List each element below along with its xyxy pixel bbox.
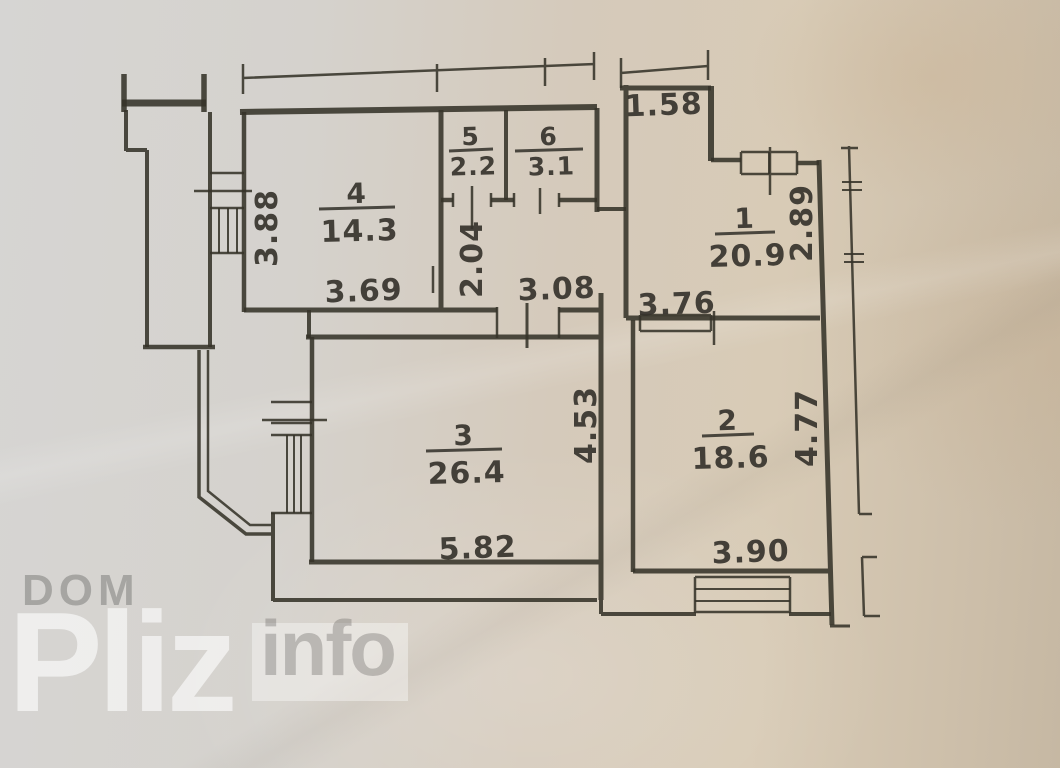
dimension-line-marks xyxy=(243,50,880,616)
room-4-area: 14.3 xyxy=(320,213,399,250)
room-5-area: 2.2 xyxy=(449,151,497,181)
dimension-lines xyxy=(243,50,880,616)
dimension-3.69: 3.69 xyxy=(324,273,403,311)
room-6-area: 3.1 xyxy=(527,151,575,181)
bay-window-outline-outer xyxy=(199,350,271,534)
floor-plan-drawing: 120.9218.6326.4414.352.263.11.583.883.69… xyxy=(0,0,1060,768)
dimension-3.76: 3.76 xyxy=(637,286,716,324)
dimension-3.88: 3.88 xyxy=(250,189,285,267)
dimension-1.58: 1.58 xyxy=(624,87,703,125)
dimension-2.89: 2.89 xyxy=(785,184,820,262)
room-2-area: 18.6 xyxy=(691,440,770,477)
dimension-3.08: 3.08 xyxy=(517,271,596,309)
room-2-number: 2 xyxy=(717,404,738,438)
scanned-floor-plan-photo: DOM Pliz info 120.9218.6326.4414.352. xyxy=(0,0,1060,768)
room-3-area: 26.4 xyxy=(427,455,506,492)
dimension-5.82: 5.82 xyxy=(438,530,517,568)
bay-window-outline-inner xyxy=(208,350,271,525)
room-2-underline xyxy=(702,434,754,436)
room-4-underline xyxy=(319,207,395,209)
room-3-underline xyxy=(426,449,502,451)
dimension-3.90: 3.90 xyxy=(711,534,790,572)
room-6-number: 6 xyxy=(539,122,558,151)
room-1-number: 1 xyxy=(734,202,755,236)
room-4-number: 4 xyxy=(346,177,367,211)
wall-secondary xyxy=(143,112,819,572)
dimension-4.53: 4.53 xyxy=(569,386,604,464)
room-3-number: 3 xyxy=(453,419,474,453)
room-1-underline xyxy=(715,232,775,234)
room-1-area: 20.9 xyxy=(708,238,787,275)
dimension-2.04: 2.04 xyxy=(455,220,490,298)
room-5-number: 5 xyxy=(461,122,480,151)
dimension-4.77: 4.77 xyxy=(790,389,825,467)
